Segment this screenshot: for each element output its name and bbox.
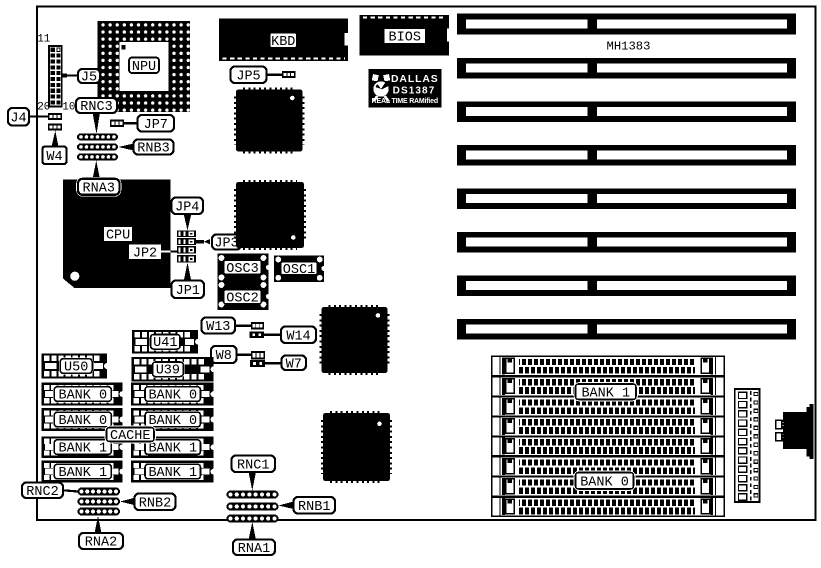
svg-text:JP3: JP3	[214, 237, 238, 252]
svg-text:U39: U39	[156, 364, 180, 379]
svg-text:RNA1: RNA1	[238, 542, 270, 557]
svg-text:REAL TIME RAMified: REAL TIME RAMified	[372, 98, 438, 105]
svg-text:20: 20	[37, 102, 50, 114]
svg-text:NPU: NPU	[132, 60, 156, 75]
svg-text:W13: W13	[206, 320, 230, 335]
svg-text:JP2: JP2	[133, 246, 157, 261]
svg-text:BANK 1: BANK 1	[58, 466, 107, 481]
svg-text:OSC3: OSC3	[226, 262, 258, 277]
svg-text:BANK 1: BANK 1	[148, 466, 197, 481]
svg-text:J4: J4	[10, 111, 26, 126]
svg-text:BANK 1: BANK 1	[58, 441, 107, 456]
svg-text:RNB1: RNB1	[298, 500, 330, 515]
svg-text:OSC2: OSC2	[226, 291, 258, 306]
svg-text:RNC3: RNC3	[80, 100, 112, 115]
svg-text:BANK 0: BANK 0	[580, 475, 629, 490]
svg-text:W4: W4	[46, 150, 62, 165]
svg-text:RNC1: RNC1	[237, 458, 269, 473]
svg-text:KBD: KBD	[271, 35, 295, 50]
svg-text:W8: W8	[216, 349, 232, 364]
svg-text:W14: W14	[286, 329, 310, 344]
svg-text:W7: W7	[286, 357, 302, 372]
svg-text:BANK 1: BANK 1	[581, 386, 630, 401]
svg-text:CPU: CPU	[106, 229, 130, 244]
svg-text:JP5: JP5	[236, 69, 260, 84]
svg-text:CACHE: CACHE	[110, 429, 151, 444]
svg-text:BIOS: BIOS	[389, 31, 421, 46]
svg-text:DALLAS: DALLAS	[391, 74, 439, 85]
svg-text:BANK 0: BANK 0	[148, 388, 197, 403]
svg-text:JP4: JP4	[175, 200, 199, 215]
svg-text:BANK 0: BANK 0	[58, 414, 107, 429]
svg-text:JP7: JP7	[144, 118, 168, 133]
svg-text:BANK 0: BANK 0	[148, 414, 197, 429]
svg-text:U50: U50	[64, 360, 88, 375]
svg-text:BANK 0: BANK 0	[58, 388, 107, 403]
svg-text:U41: U41	[153, 336, 177, 351]
svg-text:BANK 1: BANK 1	[148, 441, 197, 456]
svg-text:DS1387: DS1387	[393, 85, 436, 96]
svg-text:OSC1: OSC1	[283, 263, 315, 278]
svg-text:RNA3: RNA3	[83, 181, 115, 196]
svg-text:RNB2: RNB2	[139, 496, 171, 511]
svg-text:RNB3: RNB3	[137, 142, 169, 157]
svg-text:RNA2: RNA2	[85, 536, 117, 551]
svg-text:J5: J5	[81, 71, 97, 86]
svg-text:RNC2: RNC2	[26, 485, 58, 500]
svg-text:MH1383: MH1383	[607, 40, 651, 54]
svg-text:11: 11	[37, 34, 51, 46]
svg-text:10: 10	[62, 102, 75, 114]
svg-text:JP1: JP1	[176, 284, 200, 299]
